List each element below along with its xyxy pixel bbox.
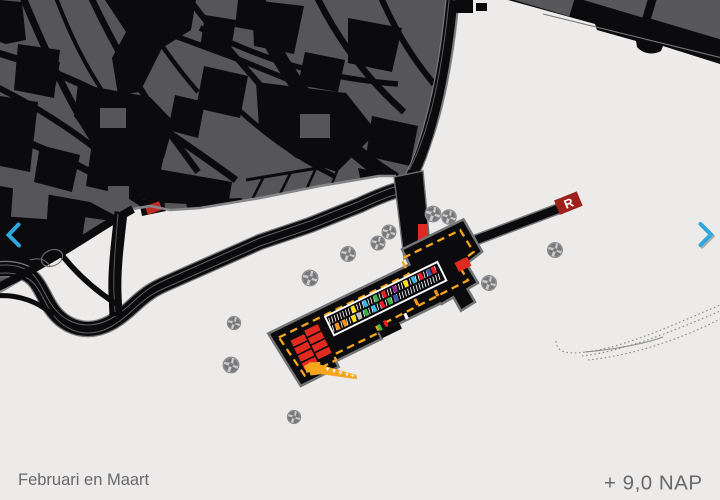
svg-text:Februari en Maart: Februari en Maart: [18, 471, 150, 489]
svg-text:+ 9,0 NAP: + 9,0 NAP: [604, 472, 703, 495]
